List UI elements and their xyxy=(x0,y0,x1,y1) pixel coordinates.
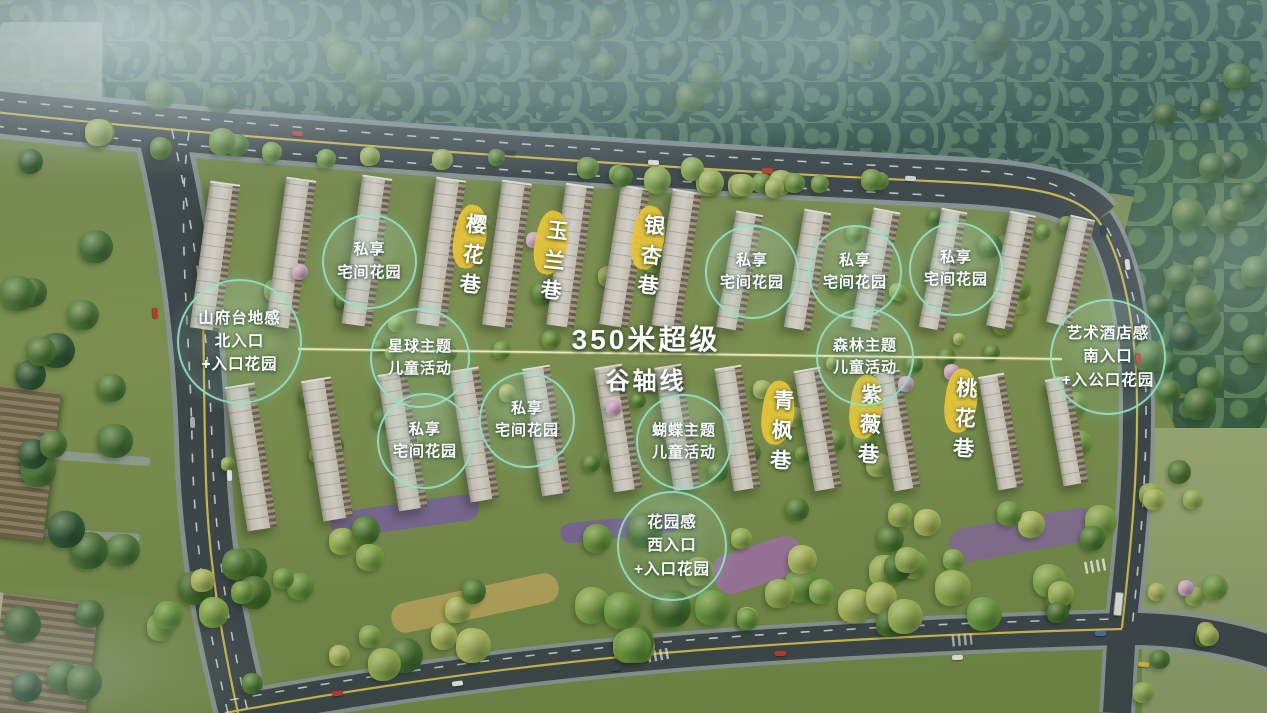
tree xyxy=(811,175,829,193)
car xyxy=(952,655,963,660)
car xyxy=(292,131,303,137)
tree xyxy=(368,648,401,681)
axis-label-line1: 350米超级 xyxy=(556,318,736,358)
blossom-tree xyxy=(1178,580,1194,596)
lane-label-text: 青枫巷 xyxy=(767,388,795,479)
lane-label-qingfeng: 青枫巷 xyxy=(763,388,798,479)
tree xyxy=(98,374,126,402)
tree xyxy=(76,600,104,628)
car xyxy=(153,308,159,319)
tree xyxy=(1222,199,1243,220)
blossom-tree xyxy=(292,264,308,280)
tree xyxy=(1047,602,1068,623)
badge-west-entrance: 花园感 西入口 +入口花园 xyxy=(617,491,727,601)
tree xyxy=(1143,489,1165,511)
tree xyxy=(612,166,633,187)
tree xyxy=(98,424,133,459)
tree xyxy=(1240,181,1260,201)
tree xyxy=(493,341,510,358)
tree xyxy=(40,431,67,458)
tree xyxy=(531,48,560,77)
car xyxy=(762,168,773,174)
tree xyxy=(1166,264,1193,291)
tree xyxy=(488,149,505,166)
car xyxy=(905,176,916,182)
tree xyxy=(694,1,721,28)
car xyxy=(190,417,195,428)
tree xyxy=(1243,334,1267,363)
tree xyxy=(765,579,793,607)
tree xyxy=(400,34,427,61)
car xyxy=(227,470,232,481)
badge-private-garden: 私享 宅间花园 xyxy=(705,225,799,319)
tree xyxy=(222,549,252,579)
badge-private-garden: 私享 宅间花园 xyxy=(479,372,575,468)
tree xyxy=(456,628,491,663)
axis-label-line2: 谷轴线 xyxy=(556,361,736,396)
tree xyxy=(788,545,817,574)
tree xyxy=(154,601,183,630)
tree xyxy=(1170,322,1198,350)
tree xyxy=(590,9,613,32)
tree xyxy=(68,300,98,330)
tree xyxy=(433,39,464,70)
lane-label-taohua: 桃花巷 xyxy=(946,376,981,467)
tree xyxy=(583,524,612,553)
tree xyxy=(660,43,682,65)
badge-south-entrance: 艺术酒店感 南入口 +入公口花园 xyxy=(1050,299,1166,415)
tree xyxy=(191,569,214,592)
tree xyxy=(352,516,380,544)
tree xyxy=(12,672,42,702)
car xyxy=(1095,631,1106,636)
tree xyxy=(231,581,255,605)
tree xyxy=(360,147,380,167)
car xyxy=(1138,661,1149,667)
tree xyxy=(732,174,755,197)
badge-butterfly-kids: 蝴蝶主题 儿童活动 xyxy=(636,394,732,490)
tree xyxy=(1185,285,1217,317)
tree xyxy=(753,88,774,109)
car xyxy=(505,150,516,156)
tree xyxy=(262,142,282,162)
badge-private-garden: 私享 宅间花园 xyxy=(377,393,473,489)
tree xyxy=(242,673,263,694)
car xyxy=(648,160,659,166)
badge-private-garden: 私享 宅间花园 xyxy=(808,225,902,319)
tree xyxy=(1241,256,1267,287)
tree xyxy=(1203,575,1228,600)
tree xyxy=(1036,224,1051,239)
tree xyxy=(1183,490,1203,510)
tree xyxy=(1147,294,1169,316)
tree xyxy=(786,498,809,521)
car xyxy=(775,651,786,657)
tree xyxy=(604,592,641,629)
tree xyxy=(1227,67,1248,88)
tree xyxy=(1157,379,1181,403)
lane-label-text: 桃花巷 xyxy=(950,376,978,467)
tree xyxy=(1148,583,1165,600)
badge-north-entrance: 山府台地感 北入口 +入口花园 xyxy=(177,279,302,404)
tree xyxy=(849,34,878,63)
tree xyxy=(317,149,335,167)
tree xyxy=(1150,650,1170,670)
tree xyxy=(107,534,140,567)
tree xyxy=(85,119,112,146)
tree xyxy=(577,157,599,179)
badge-forest-kids: 森林主题 儿童活动 xyxy=(816,308,914,406)
axis-label: 350米超级 谷轴线 xyxy=(556,318,736,396)
tree xyxy=(997,501,1022,526)
car xyxy=(610,666,621,672)
tree xyxy=(1080,526,1105,551)
tree xyxy=(80,230,113,263)
badge-private-garden: 私享 宅间花园 xyxy=(322,214,417,309)
tree xyxy=(1200,98,1221,119)
masterplan-aerial-rendering: 350米超级 谷轴线 樱花巷 玉兰巷 银杏巷 青枫巷 紫薇巷 桃花巷 山府台地感… xyxy=(0,0,1267,713)
tree xyxy=(914,509,941,536)
badge-private-garden: 私享 宅间花园 xyxy=(909,222,1003,316)
blossom-tree xyxy=(606,400,622,416)
tree xyxy=(1193,256,1213,276)
tree xyxy=(207,85,236,114)
tree xyxy=(1172,198,1205,231)
tree xyxy=(861,169,883,191)
